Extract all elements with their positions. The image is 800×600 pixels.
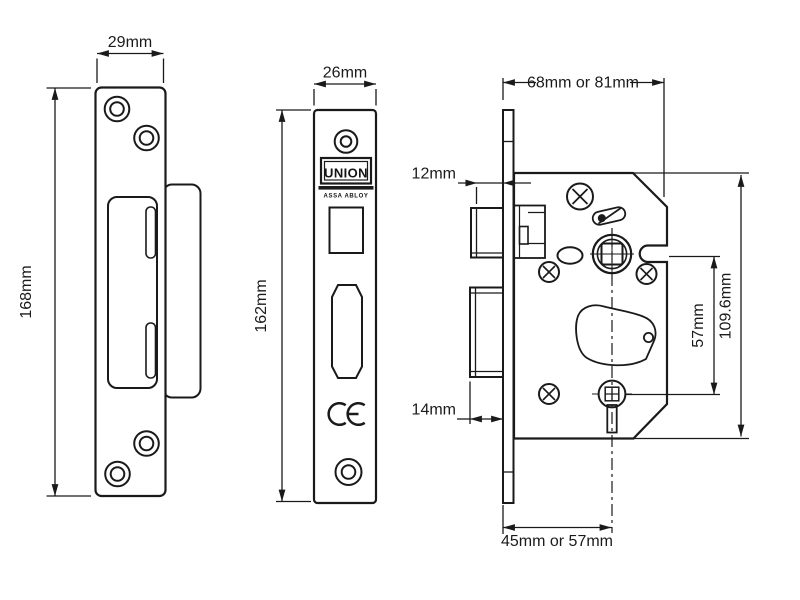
- dim-label-strike-height: 168mm: [18, 265, 35, 318]
- dim-label-bolt-projection: 14mm: [412, 402, 456, 419]
- dim-backset: 45mm or 57mm: [501, 505, 613, 550]
- dim-strike-width: 29mm: [97, 34, 164, 83]
- dim-bolt-projection: 14mm: [412, 382, 503, 425]
- dim-label-backset: 45mm or 57mm: [501, 533, 613, 550]
- dim-label-forend-height: 162mm: [253, 279, 270, 332]
- dim-label-centres: 57mm: [690, 303, 707, 347]
- dim-strike-height: 168mm: [18, 88, 91, 496]
- technical-drawing-page: 29mm 168mm UNION ASSA ABLOY: [0, 0, 800, 600]
- dim-label-latch-projection: 12mm: [412, 166, 456, 183]
- dim-label-case-width: 68mm or 81mm: [527, 75, 639, 92]
- union-brand-text: UNION: [324, 166, 368, 181]
- arrowhead: [466, 180, 478, 187]
- union-logo-base-bar: [319, 186, 374, 190]
- dim-label-case-height: 109.6mm: [718, 273, 735, 340]
- forend-figure: UNION ASSA ABLOY 26mm 162mm: [253, 65, 376, 504]
- dim-label-strike-width: 29mm: [108, 34, 152, 51]
- mortice-lock-dimension-diagram: 29mm 168mm UNION ASSA ABLOY: [0, 0, 800, 600]
- strike-plate-figure: 29mm 168mm: [18, 34, 201, 496]
- deadbolt: [470, 288, 503, 378]
- strike-box-outline: [163, 185, 201, 398]
- dim-forend-height: 162mm: [253, 110, 311, 502]
- forend-edge-bar: [503, 110, 514, 503]
- dim-label-forend-width: 26mm: [323, 65, 367, 82]
- dim-forend-width: 26mm: [314, 65, 376, 106]
- assa-abloy-text: ASSA ABLOY: [324, 194, 369, 200]
- lock-case-figure: 68mm or 81mm 12mm 14mm 57mm: [412, 75, 749, 551]
